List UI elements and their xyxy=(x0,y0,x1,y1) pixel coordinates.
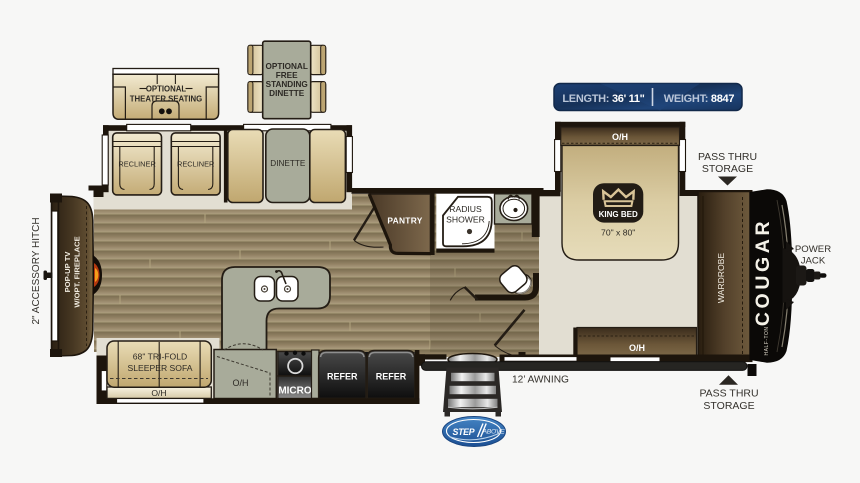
svg-text:RADIUS: RADIUS xyxy=(449,204,482,214)
svg-text:FREE: FREE xyxy=(276,71,298,80)
svg-text:LENGTH: 36' 11": LENGTH: 36' 11" xyxy=(562,93,644,105)
svg-text:12’ AWNING: 12’ AWNING xyxy=(512,375,569,386)
svg-text:POWER: POWER xyxy=(795,244,831,255)
svg-text:JACK: JACK xyxy=(801,256,826,267)
svg-text:KING BED: KING BED xyxy=(599,210,638,219)
svg-text:W/OPT. FIREPLACE: W/OPT. FIREPLACE xyxy=(73,236,82,307)
svg-text:PASS THRU: PASS THRU xyxy=(698,151,757,163)
svg-text:STORAGE: STORAGE xyxy=(702,163,753,175)
svg-text:REFER: REFER xyxy=(376,372,407,382)
svg-text:68" TRI-FOLD: 68" TRI-FOLD xyxy=(133,352,187,362)
svg-text:HALF-TON: HALF-TON xyxy=(764,327,770,356)
svg-text:REFER: REFER xyxy=(327,372,358,382)
svg-text:O/H: O/H xyxy=(629,343,645,353)
svg-text:WARDROBE: WARDROBE xyxy=(716,253,726,304)
svg-text:ABOVE: ABOVE xyxy=(482,429,506,436)
svg-text:RECLINER: RECLINER xyxy=(118,160,155,169)
svg-text:SHOWER: SHOWER xyxy=(446,215,485,225)
svg-text:MICRO: MICRO xyxy=(278,386,312,397)
svg-text:RECLINER: RECLINER xyxy=(177,160,214,169)
svg-text:DINETTE: DINETTE xyxy=(270,159,306,168)
svg-text:OPTIONAL: OPTIONAL xyxy=(146,85,187,94)
svg-text:STANDING: STANDING xyxy=(266,80,308,89)
svg-text:PANTRY: PANTRY xyxy=(387,216,422,226)
svg-text:O/H: O/H xyxy=(612,132,628,142)
svg-text:STEP: STEP xyxy=(453,427,475,437)
svg-text:DINETTE: DINETTE xyxy=(269,89,305,98)
svg-text:STORAGE: STORAGE xyxy=(703,400,754,412)
svg-text:THEATER SEATING: THEATER SEATING xyxy=(130,95,202,104)
svg-text:2" ACCESSORY HITCH: 2" ACCESSORY HITCH xyxy=(31,217,42,324)
svg-text:COUGAR: COUGAR xyxy=(752,218,774,326)
svg-text:OPTIONAL: OPTIONAL xyxy=(266,62,308,71)
svg-text:WEIGHT: 8847: WEIGHT: 8847 xyxy=(664,93,735,105)
svg-text:O/H: O/H xyxy=(232,378,248,388)
svg-text:PASS THRU: PASS THRU xyxy=(699,388,758,400)
svg-text:SLEEPER SOFA: SLEEPER SOFA xyxy=(128,363,193,373)
svg-text:POP-UP TV: POP-UP TV xyxy=(63,251,72,293)
svg-text:O/H: O/H xyxy=(151,388,166,398)
svg-text:70" x 80": 70" x 80" xyxy=(601,228,635,238)
